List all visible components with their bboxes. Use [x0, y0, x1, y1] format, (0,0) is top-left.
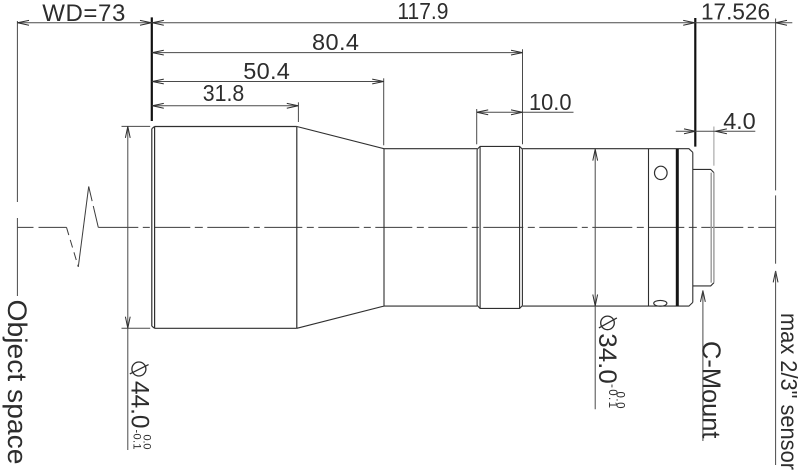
svg-text:10.0: 10.0 — [529, 89, 572, 115]
svg-text:-0.1: -0.1 — [131, 430, 143, 450]
svg-text:4.0: 4.0 — [723, 108, 756, 134]
svg-text:max 2/3" sensor: max 2/3" sensor — [776, 313, 800, 470]
svg-text:117.9: 117.9 — [397, 0, 448, 24]
svg-text:80.4: 80.4 — [312, 29, 359, 55]
svg-text:C-Mount: C-Mount — [697, 341, 727, 439]
svg-text:17.526: 17.526 — [701, 0, 770, 25]
svg-text:50.4: 50.4 — [243, 58, 289, 84]
svg-text:Object space: Object space — [2, 300, 32, 465]
svg-text:44.0: 44.0 — [126, 381, 154, 429]
svg-text:WD=73: WD=73 — [42, 0, 125, 27]
svg-text:31.8: 31.8 — [203, 80, 245, 106]
svg-text:34.0: 34.0 — [593, 333, 621, 384]
